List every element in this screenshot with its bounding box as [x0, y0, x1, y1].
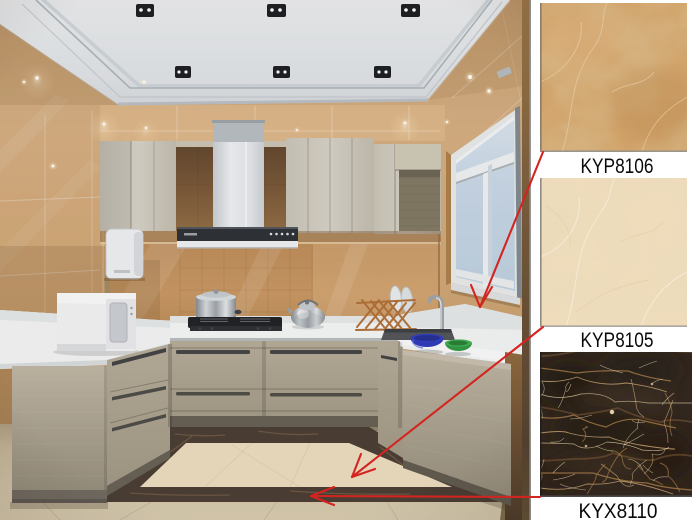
svg-text:KYX8110: KYX8110 — [579, 500, 658, 520]
svg-text:KYP8106: KYP8106 — [581, 155, 654, 178]
svg-text:KYP8105: KYP8105 — [581, 329, 654, 352]
